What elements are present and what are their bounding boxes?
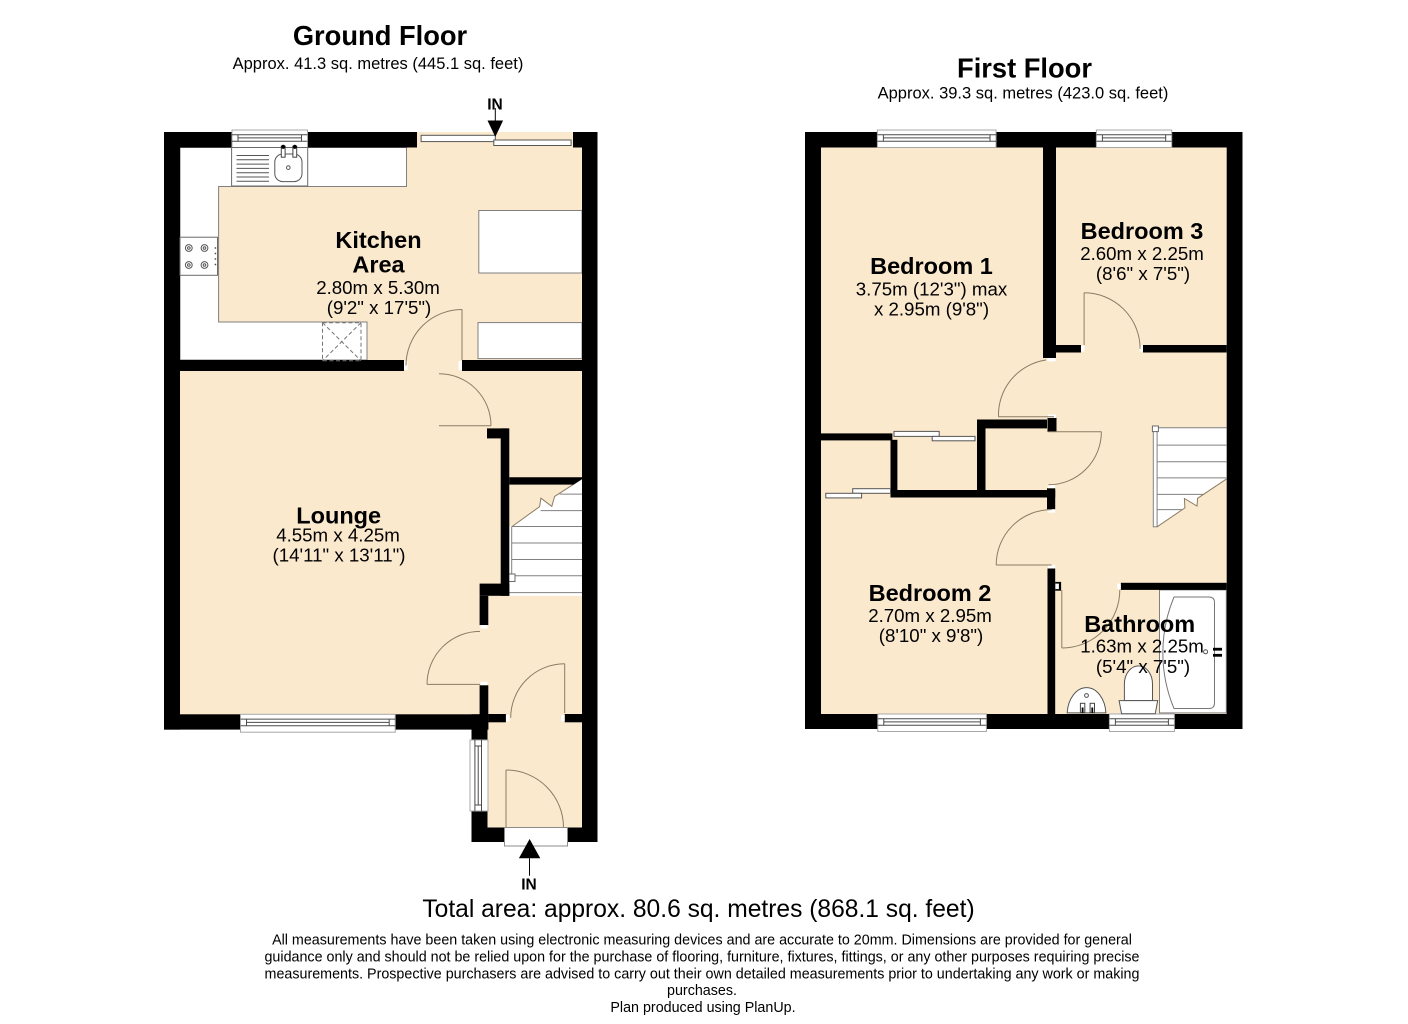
svg-text:Bedroom 2: Bedroom 2 xyxy=(869,580,992,606)
svg-text:Approx. 39.3 sq. metres (423.0: Approx. 39.3 sq. metres (423.0 sq. feet) xyxy=(878,85,1169,103)
svg-text:Ground Floor: Ground Floor xyxy=(293,20,468,51)
svg-text:x 2.95m (9'8"): x 2.95m (9'8") xyxy=(874,299,989,320)
svg-text:Approx. 41.3 sq. metres (445.1: Approx. 41.3 sq. metres (445.1 sq. feet) xyxy=(233,55,524,73)
svg-text:2.60m x 2.25m: 2.60m x 2.25m xyxy=(1080,243,1204,264)
svg-text:(8'10" x 9'8"): (8'10" x 9'8") xyxy=(879,625,984,646)
svg-text:(14'11" x 13'11"): (14'11" x 13'11") xyxy=(273,545,406,566)
svg-text:(5'4" x 7'5"): (5'4" x 7'5") xyxy=(1096,656,1190,677)
svg-text:guidance only and should not b: guidance only and should not be relied u… xyxy=(264,950,1139,966)
svg-text:measurements. Prospective purc: measurements. Prospective purchasers are… xyxy=(265,967,1140,983)
svg-text:1.63m x 2.25m: 1.63m x 2.25m xyxy=(1080,636,1204,657)
svg-text:4.55m x 4.25m: 4.55m x 4.25m xyxy=(276,525,400,546)
svg-text:(8'6" x 7'5"): (8'6" x 7'5") xyxy=(1096,263,1190,284)
svg-text:IN: IN xyxy=(521,876,537,893)
svg-text:Area: Area xyxy=(352,251,405,277)
svg-text:All measurements have been tak: All measurements have been taken using e… xyxy=(272,933,1132,949)
svg-text:3.75m (12'3") max: 3.75m (12'3") max xyxy=(856,279,1008,300)
svg-text:Total area: approx. 80.6 sq. m: Total area: approx. 80.6 sq. metres (868… xyxy=(422,896,974,923)
svg-text:Bathroom: Bathroom xyxy=(1084,611,1195,637)
svg-text:Bedroom 1: Bedroom 1 xyxy=(870,253,993,279)
svg-text:First Floor: First Floor xyxy=(957,53,1092,84)
svg-text:2.70m x 2.95m: 2.70m x 2.95m xyxy=(868,605,992,626)
svg-text:IN: IN xyxy=(487,97,503,114)
svg-text:purchases.: purchases. xyxy=(667,983,737,999)
svg-text:Bedroom 3: Bedroom 3 xyxy=(1081,218,1204,244)
svg-text:Kitchen: Kitchen xyxy=(335,227,421,253)
svg-text:Plan produced using PlanUp.: Plan produced using PlanUp. xyxy=(610,1000,795,1016)
svg-text:2.80m x 5.30m: 2.80m x 5.30m xyxy=(316,277,440,298)
svg-text:(9'2" x 17'5"): (9'2" x 17'5") xyxy=(327,297,432,318)
